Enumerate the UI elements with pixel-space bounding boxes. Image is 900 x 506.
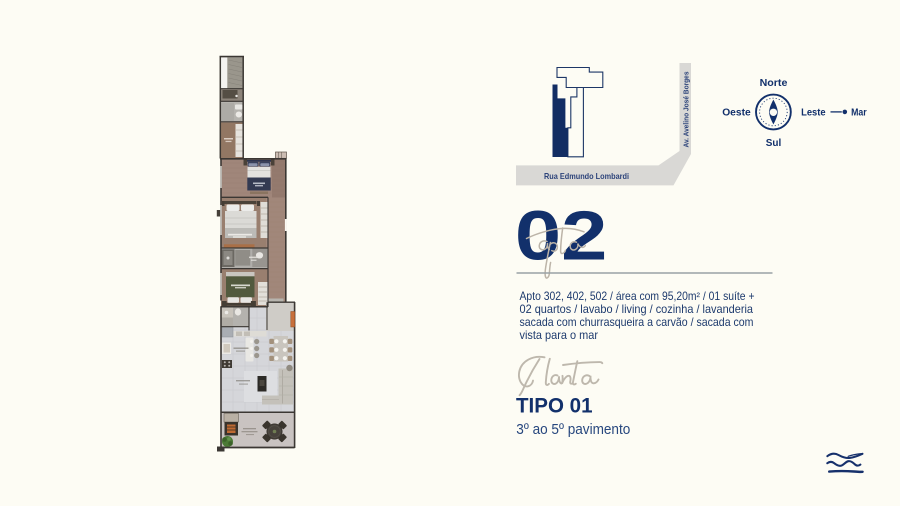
svg-text:02 quartos / lavabo / living /: 02 quartos / lavabo / living / cozinha /… xyxy=(520,303,754,316)
svg-text:sacada com churrasqueira a car: sacada com churrasqueira a carvão / saca… xyxy=(520,316,754,329)
svg-text:3º ao 5º pavimento: 3º ao 5º pavimento xyxy=(516,421,630,438)
svg-text:TIPO 01: TIPO 01 xyxy=(516,394,593,418)
svg-text:Apto 302, 402, 502 / área com: Apto 302, 402, 502 / área com 95,20m² / … xyxy=(520,290,755,303)
svg-text:Rua Edmundo Lombardi: Rua Edmundo Lombardi xyxy=(544,171,629,181)
svg-text:Mar: Mar xyxy=(851,107,867,119)
svg-text:Av. Avelino José Borges: Av. Avelino José Borges xyxy=(681,72,690,148)
svg-text:vista para o mar: vista para o mar xyxy=(520,329,599,342)
svg-text:Oeste: Oeste xyxy=(722,107,751,119)
svg-text:Sul: Sul xyxy=(766,137,782,149)
svg-text:Norte: Norte xyxy=(760,77,788,89)
svg-text:Leste: Leste xyxy=(801,107,826,119)
